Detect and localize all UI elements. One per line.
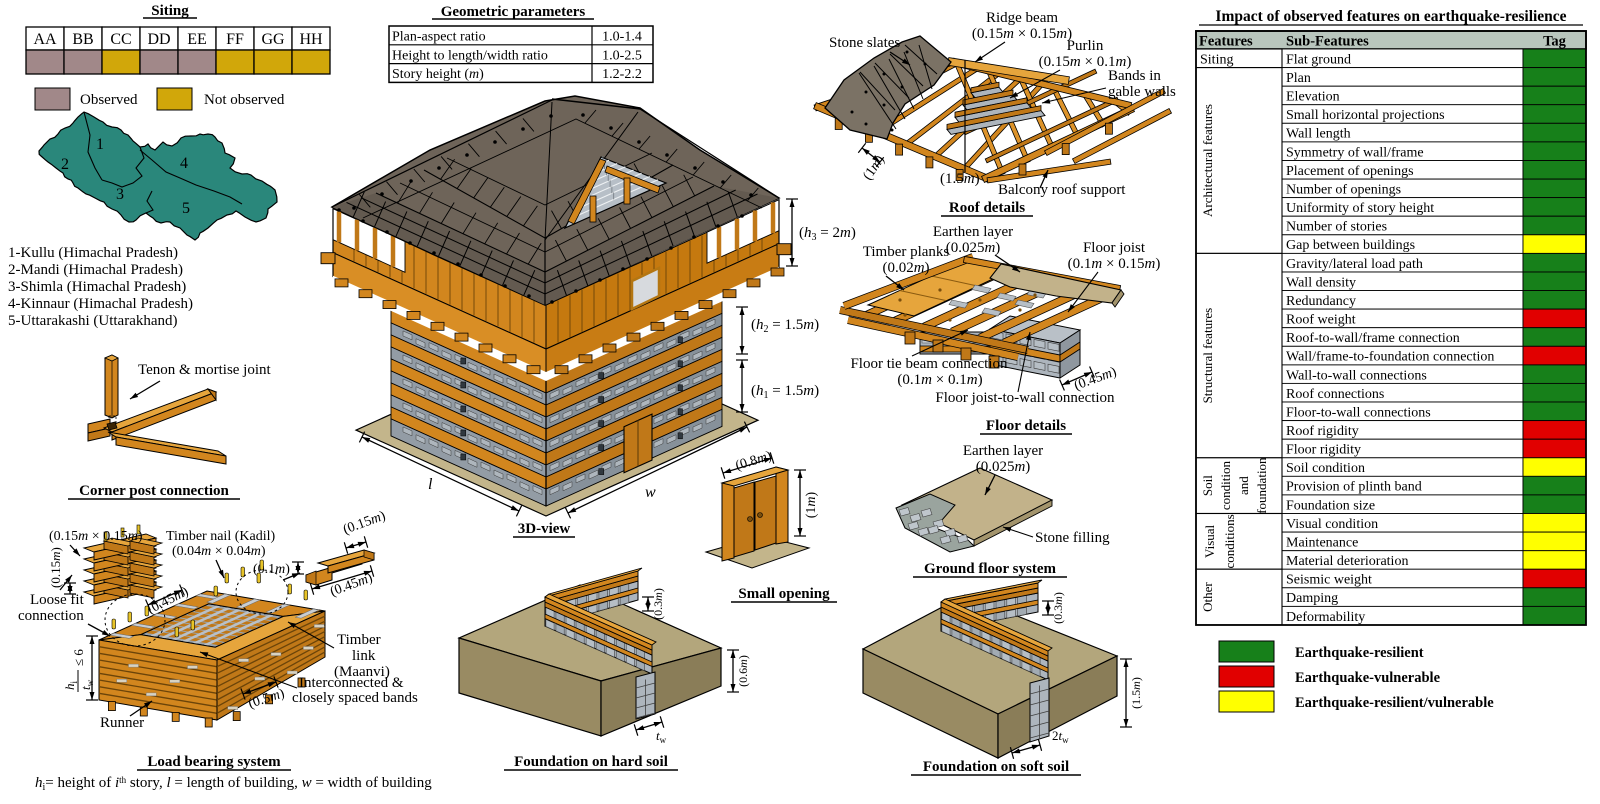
svg-text:HH: HH (299, 31, 323, 48)
svg-text:l: l (428, 476, 433, 493)
svg-text:(1.5m): (1.5m) (940, 171, 980, 187)
svg-text:Floor tie beam connection: Floor tie beam connection (850, 356, 1008, 372)
svg-text:Roof details: Roof details (949, 200, 1025, 216)
svg-text:(0.15m × 0.15m): (0.15m × 0.15m) (49, 529, 143, 544)
svg-text:Plan-aspect ratio: Plan-aspect ratio (392, 30, 486, 45)
svg-text:≤ 6: ≤ 6 (71, 649, 86, 666)
svg-text:Timber nail (Kadil): Timber nail (Kadil) (166, 529, 275, 544)
svg-text:Ridge beam: Ridge beam (986, 10, 1058, 26)
svg-text:hi= height of ith story, l =: hi= height of ith story, l = length of b… (35, 775, 432, 793)
svg-text:Earthen layer: Earthen layer (963, 443, 1043, 459)
svg-text:Soil condition: Soil condition (1286, 461, 1365, 476)
svg-text:GG: GG (261, 31, 285, 48)
svg-text:Floor joist: Floor joist (1083, 240, 1146, 256)
svg-text:Load bearing system: Load bearing system (147, 754, 281, 770)
svg-text:Earthen layer: Earthen layer (933, 224, 1013, 240)
svg-text:Earthquake-resilient/vulnerabl: Earthquake-resilient/vulnerable (1295, 695, 1494, 711)
svg-text:Foundation on hard soil: Foundation on hard soil (514, 754, 668, 770)
svg-text:3D-view: 3D-view (518, 521, 571, 537)
svg-text:Wall/frame-to-foundation conne: Wall/frame-to-foundation connection (1286, 350, 1494, 365)
svg-text:Purlin: Purlin (1067, 38, 1104, 54)
svg-text:2: 2 (61, 156, 69, 173)
svg-text:DD: DD (147, 31, 170, 48)
svg-text:closely spaced bands: closely spaced bands (292, 690, 418, 706)
svg-text:Earthquake-resilient: Earthquake-resilient (1295, 645, 1424, 661)
svg-text:Roof rigidity: Roof rigidity (1286, 424, 1359, 439)
svg-text:Balcony roof support: Balcony roof support (998, 182, 1126, 198)
svg-text:(0.15m × 0.15m): (0.15m × 0.15m) (972, 26, 1072, 42)
svg-text:Wall-to-wall connections: Wall-to-wall connections (1286, 368, 1427, 383)
svg-text:1.2-2.2: 1.2-2.2 (602, 67, 642, 82)
svg-text:Roof connections: Roof connections (1286, 387, 1384, 402)
svg-text:Story height (m): Story height (m) (392, 67, 484, 82)
svg-text:connection: connection (18, 608, 84, 624)
svg-text:1.0-2.5: 1.0-2.5 (602, 48, 642, 63)
svg-text:Visual: Visual (1202, 524, 1217, 558)
svg-text:Elevation: Elevation (1286, 90, 1340, 105)
svg-text:(0.04m × 0.04m): (0.04m × 0.04m) (172, 544, 266, 559)
svg-text:Small horizontal projections: Small horizontal projections (1286, 108, 1445, 123)
svg-text:Foundation size: Foundation size (1286, 498, 1375, 513)
svg-text:foundation: foundation (1254, 457, 1269, 514)
svg-text:Gap between buildings: Gap between buildings (1286, 238, 1415, 253)
svg-text:Geometric parameters: Geometric parameters (441, 4, 586, 20)
svg-text:Sub-Features: Sub-Features (1286, 34, 1369, 50)
svg-text:Siting: Siting (1200, 53, 1233, 68)
svg-text:3: 3 (116, 186, 124, 203)
svg-text:Stone slates: Stone slates (829, 35, 900, 51)
svg-text:Structural features: Structural features (1200, 308, 1215, 404)
svg-text:Floor rigidity: Floor rigidity (1286, 443, 1361, 458)
svg-text:AA: AA (33, 31, 57, 48)
svg-text:(0.025m): (0.025m) (946, 240, 1001, 256)
svg-text:Timber: Timber (337, 632, 381, 648)
svg-text:Number of openings: Number of openings (1286, 183, 1401, 198)
svg-text:Damping: Damping (1286, 591, 1338, 606)
svg-text:Maintenance: Maintenance (1286, 536, 1358, 551)
svg-text:(0.1m × 0.15m): (0.1m × 0.15m) (1068, 256, 1161, 272)
svg-text:(0.025m): (0.025m) (976, 459, 1031, 475)
svg-text:Flat ground: Flat ground (1286, 52, 1351, 67)
svg-text:2-Mandi (Himachal Pradesh): 2-Mandi (Himachal Pradesh) (8, 262, 183, 278)
svg-text:EE: EE (187, 31, 207, 48)
svg-text:Floor joist-to-wall connection: Floor joist-to-wall connection (935, 390, 1115, 406)
svg-text:BB: BB (72, 31, 93, 48)
svg-text:Provision of plinth band: Provision of plinth band (1286, 480, 1422, 495)
svg-text:conditions: conditions (1222, 514, 1237, 568)
svg-text:5: 5 (182, 200, 190, 217)
svg-text:Stone filling: Stone filling (1035, 530, 1110, 546)
svg-text:CC: CC (110, 31, 131, 48)
svg-text:Deformability: Deformability (1286, 610, 1365, 625)
svg-text:Soil: Soil (1200, 475, 1215, 496)
svg-text:(h3 = 2m): (h3 = 2m) (799, 225, 856, 243)
svg-text:(0.3m): (0.3m) (651, 588, 665, 620)
svg-text:Tag: Tag (1543, 34, 1567, 50)
svg-text:Placement of openings: Placement of openings (1286, 164, 1414, 179)
svg-text:Not observed: Not observed (204, 92, 285, 108)
svg-text:Impact of observed features on: Impact of observed features on earthquak… (1215, 8, 1566, 25)
svg-text:Visual condition: Visual condition (1286, 517, 1378, 532)
svg-text:5-Uttarakashi (Uttarakhand): 5-Uttarakashi (Uttarakhand) (8, 313, 178, 329)
svg-text:Other: Other (1200, 582, 1215, 612)
svg-text:Loose fit: Loose fit (30, 592, 85, 608)
svg-text:Runner: Runner (100, 715, 144, 731)
svg-text:Bands in: Bands in (1108, 68, 1161, 84)
svg-text:link: link (352, 648, 376, 664)
svg-text:Material deterioration: Material deterioration (1286, 554, 1408, 569)
svg-text:Interconnected &: Interconnected & (299, 675, 404, 691)
svg-text:Tenon & mortise joint: Tenon & mortise joint (138, 362, 272, 378)
svg-text:Foundation on soft soil: Foundation on soft soil (923, 759, 1069, 775)
svg-text:gable walls: gable walls (1108, 84, 1176, 100)
svg-text:Small opening: Small opening (738, 586, 830, 602)
svg-text:Plan: Plan (1286, 71, 1311, 86)
svg-text:(1.5m): (1.5m) (1129, 677, 1143, 709)
svg-text:Siting: Siting (151, 3, 189, 19)
svg-text:(h2 = 1.5m): (h2 = 1.5m) (751, 317, 819, 335)
svg-text:Ground floor system: Ground floor system (924, 561, 1056, 577)
svg-text:Timber planks: Timber planks (863, 244, 950, 260)
svg-text:Features: Features (1199, 34, 1253, 50)
svg-text:(0.3m): (0.3m) (1051, 592, 1065, 624)
svg-text:Corner post connection: Corner post connection (79, 483, 229, 499)
svg-text:Height to length/width ratio: Height to length/width ratio (392, 48, 548, 63)
svg-text:(0.02m): (0.02m) (882, 260, 929, 276)
svg-text:FF: FF (226, 31, 244, 48)
svg-text:Wall density: Wall density (1286, 275, 1356, 290)
svg-text:Architectural features: Architectural features (1200, 104, 1215, 217)
svg-text:(h1 = 1.5m): (h1 = 1.5m) (751, 383, 819, 401)
svg-text:1: 1 (96, 136, 104, 153)
svg-text:(0.1m × 0.1m): (0.1m × 0.1m) (897, 372, 982, 388)
svg-text:Observed: Observed (80, 92, 138, 108)
svg-text:Number of stories: Number of stories (1286, 220, 1387, 235)
svg-text:Redundancy: Redundancy (1286, 294, 1356, 309)
svg-text:(0.6m): (0.6m) (736, 655, 750, 687)
svg-text:Roof-to-wall/frame connection: Roof-to-wall/frame connection (1286, 331, 1460, 346)
svg-text:4: 4 (180, 155, 188, 172)
svg-text:w: w (645, 484, 656, 501)
svg-text:1-Kullu (Himachal Pradesh): 1-Kullu (Himachal Pradesh) (8, 245, 178, 261)
svg-text:Seismic weight: Seismic weight (1286, 573, 1372, 588)
svg-text:4-Kinnaur (Himachal Pradesh): 4-Kinnaur (Himachal Pradesh) (8, 296, 193, 312)
svg-text:1.0-1.4: 1.0-1.4 (602, 30, 642, 45)
svg-text:Gravity/lateral load path: Gravity/lateral load path (1286, 257, 1423, 272)
svg-text:Earthquake-vulnerable: Earthquake-vulnerable (1295, 670, 1441, 686)
svg-text:(0.15m): (0.15m) (48, 547, 63, 588)
svg-text:Floor-to-wall connections: Floor-to-wall connections (1286, 405, 1431, 420)
svg-text:(1m): (1m) (804, 491, 819, 518)
svg-text:Floor details: Floor details (986, 418, 1066, 434)
svg-text:and: and (1236, 476, 1251, 495)
svg-text:condition: condition (1218, 461, 1233, 511)
svg-text:Roof weight: Roof weight (1286, 313, 1356, 328)
svg-text:Symmetry of wall/frame: Symmetry of wall/frame (1286, 145, 1424, 160)
svg-text:3-Shimla (Himachal Pradesh): 3-Shimla (Himachal Pradesh) (8, 279, 186, 295)
svg-text:Uniformity of story height: Uniformity of story height (1286, 201, 1434, 216)
svg-text:Wall length: Wall length (1286, 127, 1351, 142)
